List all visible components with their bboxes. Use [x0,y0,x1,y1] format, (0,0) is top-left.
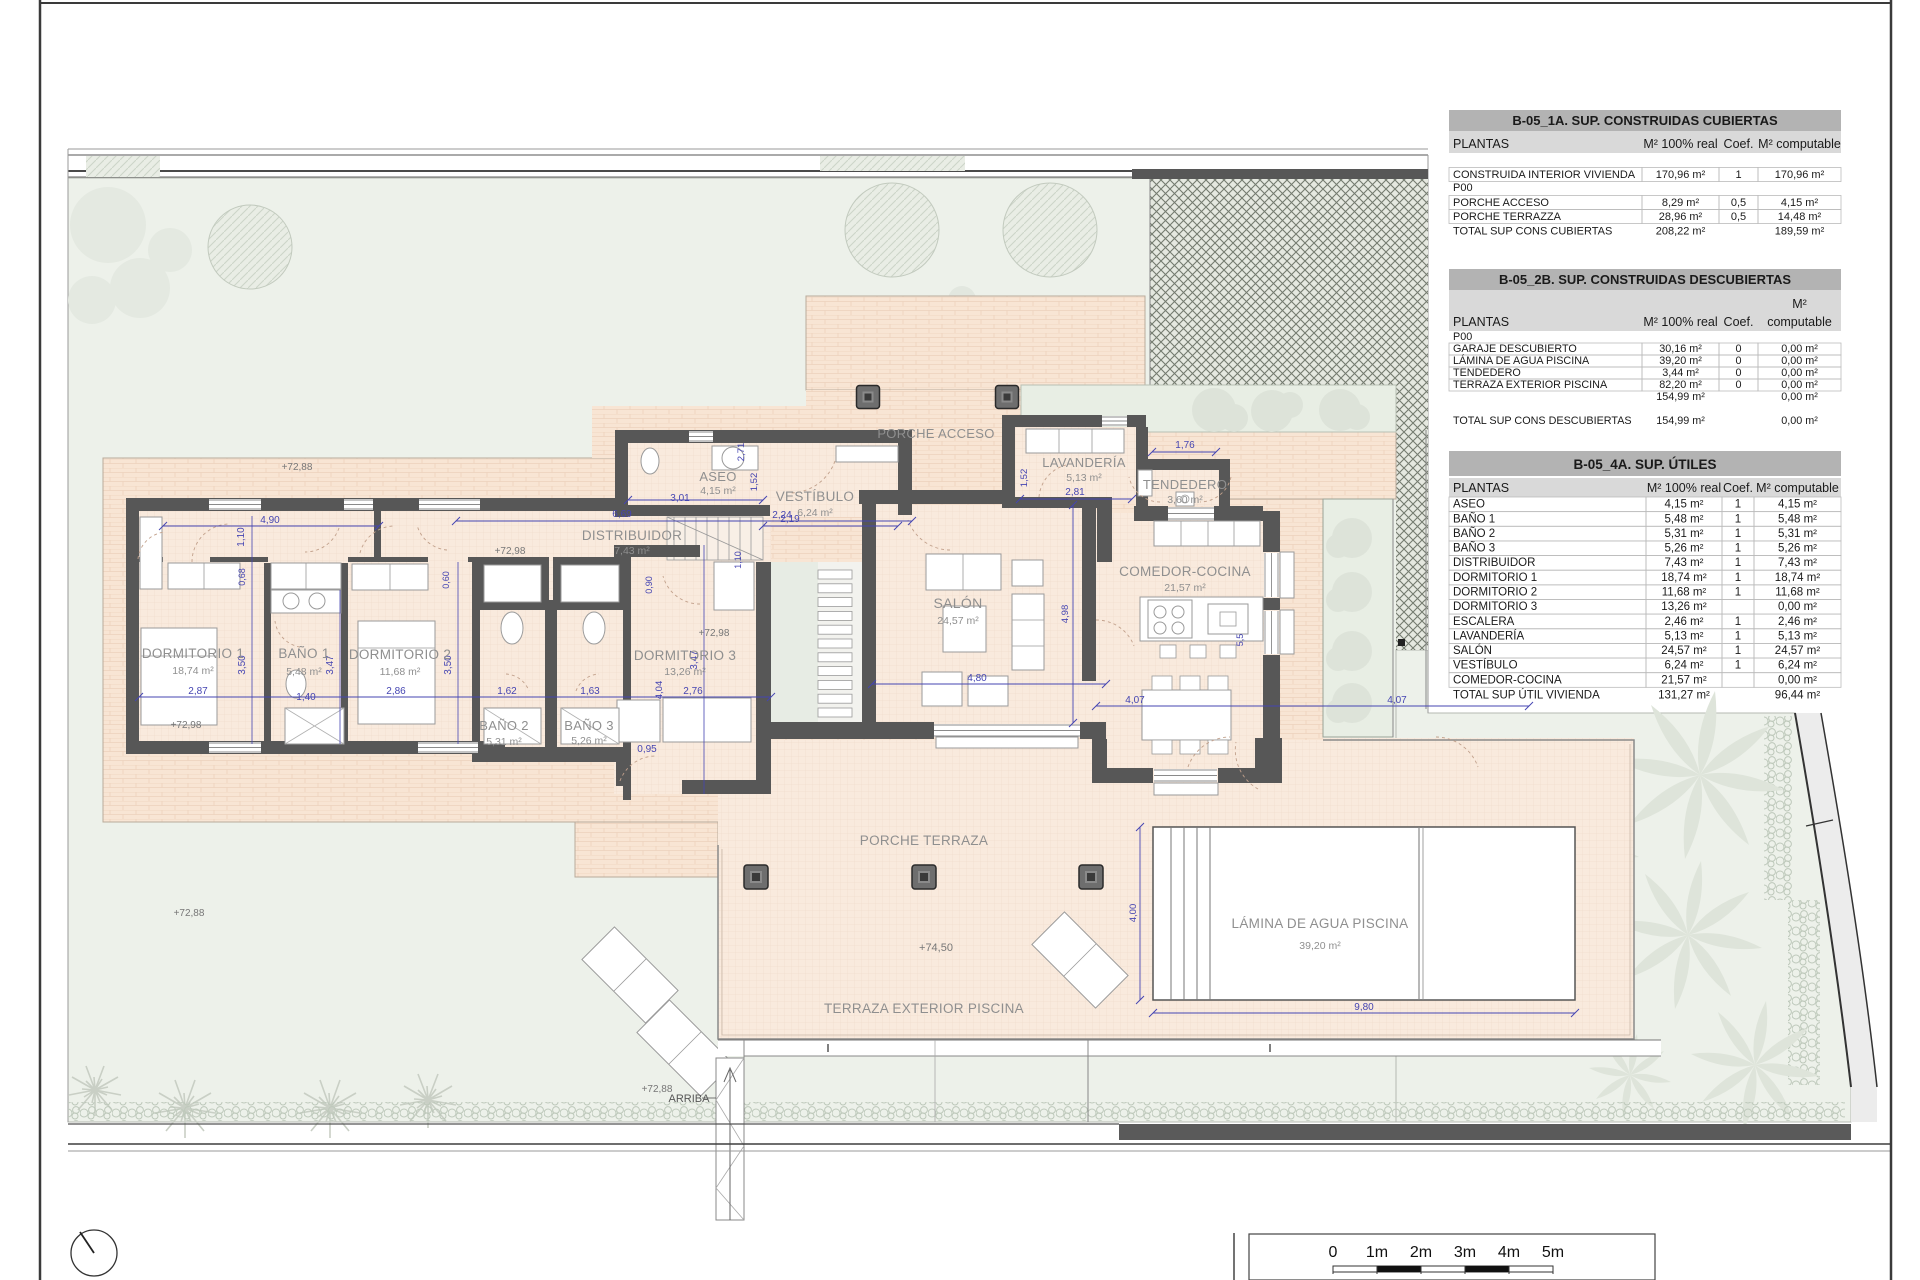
svg-text:TERRAZA EXTERIOR PISCINA: TERRAZA EXTERIOR PISCINA [1453,379,1608,391]
svg-text:TENDEDERO: TENDEDERO [1453,367,1521,379]
svg-text:24,57 m²: 24,57 m² [1661,645,1707,657]
svg-text:3,01: 3,01 [670,493,690,504]
svg-text:5,31 m²: 5,31 m² [486,736,522,748]
svg-text:131,27 m²: 131,27 m² [1658,689,1710,701]
svg-text:5,13 m²: 5,13 m² [1665,630,1704,642]
svg-text:DORMITORIO 2: DORMITORIO 2 [1453,586,1537,598]
svg-text:M² computable: M² computable [1756,481,1839,495]
svg-text:1,52: 1,52 [1019,469,1030,488]
svg-text:PLANTAS: PLANTAS [1453,137,1509,151]
svg-text:9,80: 9,80 [1354,1002,1374,1013]
svg-text:2,24: 2,24 [772,510,792,521]
svg-text:DISTRIBUIDOR: DISTRIBUIDOR [1453,557,1535,569]
svg-text:DISTRIBUIDOR: DISTRIBUIDOR [582,528,682,543]
svg-text:24,57 m²: 24,57 m² [937,615,979,627]
svg-text:ARRIBA: ARRIBA [669,1093,711,1105]
svg-text:2,71: 2,71 [736,443,747,462]
svg-text:LÁMINA DE AGUA PISCINA: LÁMINA DE AGUA PISCINA [1232,916,1409,931]
svg-text:4,07: 4,07 [1125,695,1145,706]
svg-text:DORMITORIO 3: DORMITORIO 3 [1453,601,1537,613]
svg-text:5,13 m²: 5,13 m² [1066,472,1102,484]
svg-text:18,74 m²: 18,74 m² [1775,572,1821,584]
svg-text:1,52: 1,52 [749,473,760,492]
svg-text:5,13 m²: 5,13 m² [1778,630,1817,642]
svg-text:5,31 m²: 5,31 m² [1778,528,1817,540]
svg-text:2,46 m²: 2,46 m² [1778,616,1817,628]
svg-text:BAÑO 1: BAÑO 1 [1453,512,1495,525]
svg-text:1,76: 1,76 [1175,440,1195,451]
svg-text:TOTAL SUP ÚTIL VIVIENDA: TOTAL SUP ÚTIL VIVIENDA [1453,688,1600,701]
svg-text:1,40: 1,40 [296,692,316,703]
svg-text:4,80: 4,80 [967,673,987,684]
svg-text:M² 100% real: M² 100% real [1647,481,1721,495]
svg-text:39,20 m²: 39,20 m² [1299,940,1341,952]
svg-text:+72,98: +72,98 [699,628,730,639]
svg-text:M² 100% real: M² 100% real [1643,137,1717,151]
svg-text:4,15 m²: 4,15 m² [1665,499,1704,511]
svg-text:1: 1 [1735,169,1741,181]
svg-text:0,00 m²: 0,00 m² [1781,415,1818,427]
svg-text:5,48 m²: 5,48 m² [1778,513,1817,525]
svg-text:6,24 m²: 6,24 m² [797,507,833,519]
svg-text:18,74 m²: 18,74 m² [1661,572,1707,584]
svg-text:170,96 m²: 170,96 m² [1656,169,1706,181]
svg-text:0: 0 [1735,355,1741,367]
svg-text:BAÑO 2: BAÑO 2 [479,718,528,733]
svg-text:8,29 m²: 8,29 m² [1662,197,1700,209]
svg-text:+72,88: +72,88 [642,1084,673,1095]
svg-text:ESCALERA: ESCALERA [1453,616,1515,628]
svg-text:DORMITORIO 3: DORMITORIO 3 [634,648,736,663]
svg-text:VESTÍBULO: VESTÍBULO [1453,659,1518,672]
svg-text:3m: 3m [1454,1244,1476,1261]
svg-text:0: 0 [1329,1244,1338,1261]
svg-text:1: 1 [1735,572,1741,584]
svg-text:P00: P00 [1453,182,1473,194]
svg-text:DORMITORIO 2: DORMITORIO 2 [349,647,451,662]
svg-text:24,57 m²: 24,57 m² [1775,645,1821,657]
svg-text:2,86: 2,86 [386,686,406,697]
svg-text:2,81: 2,81 [1065,487,1085,498]
svg-text:1: 1 [1735,557,1741,569]
svg-text:1: 1 [1735,499,1741,511]
svg-text:0: 0 [1735,379,1741,391]
svg-text:Coef.: Coef. [1724,137,1754,151]
svg-text:SALÓN: SALÓN [1453,644,1492,657]
svg-text:+72,88: +72,88 [282,462,313,473]
svg-text:PLANTAS: PLANTAS [1453,481,1509,495]
svg-text:0,00 m²: 0,00 m² [1781,355,1818,367]
svg-text:+72,98: +72,98 [171,720,202,731]
svg-text:2m: 2m [1410,1244,1432,1261]
svg-text:4,04: 4,04 [654,681,665,700]
svg-text:TOTAL SUP CONS DESCUBIERTAS: TOTAL SUP CONS DESCUBIERTAS [1453,415,1632,427]
svg-text:LAVANDERÍA: LAVANDERÍA [1453,629,1524,642]
svg-text:13,26 m²: 13,26 m² [664,666,706,678]
svg-text:5,31 m²: 5,31 m² [1665,528,1704,540]
svg-text:7,43 m²: 7,43 m² [1665,557,1704,569]
svg-text:CONSTRUIDA INTERIOR VIVIENDA: CONSTRUIDA INTERIOR VIVIENDA [1453,169,1636,181]
svg-text:1: 1 [1735,660,1741,672]
svg-text:21,57 m²: 21,57 m² [1164,582,1206,594]
svg-text:COMEDOR-COCINA: COMEDOR-COCINA [1119,564,1251,579]
svg-text:5,26 m²: 5,26 m² [1778,543,1817,555]
svg-text:170,96 m²: 170,96 m² [1775,169,1825,181]
svg-text:SALÓN: SALÓN [934,595,983,611]
svg-text:5,26 m²: 5,26 m² [1665,543,1704,555]
svg-text:Coef.: Coef. [1723,481,1753,495]
svg-text:30,16 m²: 30,16 m² [1659,343,1702,355]
svg-text:18,74 m²: 18,74 m² [172,665,214,677]
svg-text:1: 1 [1735,630,1741,642]
svg-text:0,95: 0,95 [637,744,657,755]
svg-text:39,20 m²: 39,20 m² [1659,355,1702,367]
svg-text:4,00: 4,00 [1128,904,1139,923]
svg-text:4m: 4m [1498,1244,1520,1261]
svg-text:TOTAL SUP CONS CUBIERTAS: TOTAL SUP CONS CUBIERTAS [1453,226,1612,238]
svg-text:0,5: 0,5 [1731,211,1746,223]
svg-text:M² computable: M² computable [1758,137,1841,151]
svg-text:11,68 m²: 11,68 m² [1662,586,1707,598]
svg-text:1,10: 1,10 [733,551,743,569]
svg-text:LÁMINA DE AGUA PISCINA: LÁMINA DE AGUA PISCINA [1453,354,1590,367]
svg-text:3,60 m²: 3,60 m² [1167,494,1203,506]
svg-text:1: 1 [1735,513,1741,525]
svg-text:0,60: 0,60 [441,571,451,589]
svg-text:0,00 m²: 0,00 m² [1781,391,1818,403]
svg-text:DORMITORIO 1: DORMITORIO 1 [142,646,244,661]
svg-text:1,10: 1,10 [236,527,247,547]
svg-text:4,98: 4,98 [1060,605,1071,624]
svg-text:PORCHE TERRAZZA: PORCHE TERRAZZA [1453,211,1562,223]
svg-text:154,99 m²: 154,99 m² [1656,391,1705,403]
svg-text:4,15 m²: 4,15 m² [700,485,736,497]
svg-text:1: 1 [1735,645,1741,657]
svg-text:1: 1 [1735,528,1741,540]
svg-text:BAÑO 1: BAÑO 1 [278,646,329,661]
svg-text:0,00 m²: 0,00 m² [1781,367,1818,379]
svg-text:P00: P00 [1453,331,1472,343]
svg-text:0,5: 0,5 [1731,197,1746,209]
svg-text:GARAJE DESCUBIERTO: GARAJE DESCUBIERTO [1453,343,1577,355]
svg-text:0: 0 [1735,343,1741,355]
svg-text:ASEO: ASEO [1453,499,1485,511]
svg-text:TENDEDERO: TENDEDERO [1143,477,1227,492]
svg-text:TERRAZA EXTERIOR PISCINA: TERRAZA EXTERIOR PISCINA [824,1001,1024,1016]
svg-text:14,48 m²: 14,48 m² [1778,211,1822,223]
svg-text:+74,50: +74,50 [919,942,953,954]
svg-text:0,90: 0,90 [644,576,654,594]
svg-text:208,22 m²: 208,22 m² [1656,226,1706,238]
svg-text:96,44 m²: 96,44 m² [1775,689,1821,701]
svg-text:PORCHE ACCESO: PORCHE ACCESO [877,426,994,441]
svg-text:1: 1 [1735,543,1741,555]
svg-text:28,96 m²: 28,96 m² [1659,211,1703,223]
svg-text:PORCHE TERRAZA: PORCHE TERRAZA [860,833,988,848]
svg-text:6,24 m²: 6,24 m² [1665,660,1704,672]
svg-text:BAÑO 2: BAÑO 2 [1453,527,1495,540]
svg-text:189,59 m²: 189,59 m² [1775,226,1825,238]
svg-text:0: 0 [1735,367,1741,379]
svg-text:0,00 m²: 0,00 m² [1781,379,1818,391]
svg-text:1: 1 [1735,586,1741,598]
svg-text:4,15 m²: 4,15 m² [1781,197,1819,209]
svg-text:154,99 m²: 154,99 m² [1656,415,1705,427]
svg-text:7,43 m²: 7,43 m² [614,545,650,557]
svg-text:BAÑO 3: BAÑO 3 [564,718,613,733]
svg-text:0,00 m²: 0,00 m² [1778,674,1817,686]
svg-text:6,69: 6,69 [612,509,632,520]
svg-text:LAVANDERÍA: LAVANDERÍA [1042,455,1125,470]
svg-text:+72,98: +72,98 [495,546,526,557]
svg-text:5,48 m²: 5,48 m² [1665,513,1704,525]
svg-text:COMEDOR-COCINA: COMEDOR-COCINA [1453,674,1562,686]
svg-text:11,68 m²: 11,68 m² [1775,586,1820,598]
svg-text:B-05_1A. SUP. CONSTRUIDAS CUBI: B-05_1A. SUP. CONSTRUIDAS CUBIERTAS [1512,113,1778,128]
svg-text:11,68 m²: 11,68 m² [380,666,421,678]
svg-text:M² 100% real: M² 100% real [1643,315,1717,329]
svg-text:4,07: 4,07 [1387,695,1407,706]
svg-text:0,00 m²: 0,00 m² [1778,601,1817,613]
svg-text:2,46 m²: 2,46 m² [1665,616,1704,628]
svg-text:1: 1 [1735,616,1741,628]
svg-text:82,20 m²: 82,20 m² [1659,379,1702,391]
svg-text:1,63: 1,63 [580,686,600,697]
svg-text:2,87: 2,87 [188,686,208,697]
svg-text:5,48 m²: 5,48 m² [286,666,322,678]
svg-text:M²: M² [1792,297,1807,311]
svg-text:7,43 m²: 7,43 m² [1778,557,1817,569]
svg-text:0,68: 0,68 [237,568,247,586]
svg-text:VESTÍBULO: VESTÍBULO [776,489,854,504]
svg-text:PLANTAS: PLANTAS [1453,315,1509,329]
svg-text:Coef.: Coef. [1724,315,1754,329]
svg-text:5m: 5m [1542,1244,1564,1261]
svg-text:1m: 1m [1366,1244,1388,1261]
svg-text:ASEO: ASEO [699,469,736,484]
svg-text:B-05_2B. SUP. CONSTRUIDAS DESC: B-05_2B. SUP. CONSTRUIDAS DESCUBIERTAS [1499,272,1791,287]
svg-text:5,5: 5,5 [1235,634,1245,647]
svg-text:DORMITORIO 1: DORMITORIO 1 [1453,572,1537,584]
svg-text:13,26 m²: 13,26 m² [1661,601,1707,613]
svg-text:4,90: 4,90 [260,515,280,526]
svg-text:PORCHE ACCESO: PORCHE ACCESO [1453,197,1549,209]
svg-text:B-05_4A. SUP. ÚTILES: B-05_4A. SUP. ÚTILES [1573,457,1716,472]
svg-text:21,57 m²: 21,57 m² [1661,674,1707,686]
svg-text:0,00 m²: 0,00 m² [1781,343,1818,355]
svg-text:6,24 m²: 6,24 m² [1778,660,1817,672]
svg-text:+72,88: +72,88 [174,908,205,919]
svg-text:computable: computable [1767,315,1832,329]
svg-text:5,26 m²: 5,26 m² [571,735,607,747]
svg-text:3,44 m²: 3,44 m² [1662,367,1699,379]
svg-text:4,15 m²: 4,15 m² [1778,499,1817,511]
svg-text:BAÑO 3: BAÑO 3 [1453,542,1495,555]
svg-text:1,62: 1,62 [497,686,517,697]
svg-text:2,76: 2,76 [683,686,703,697]
